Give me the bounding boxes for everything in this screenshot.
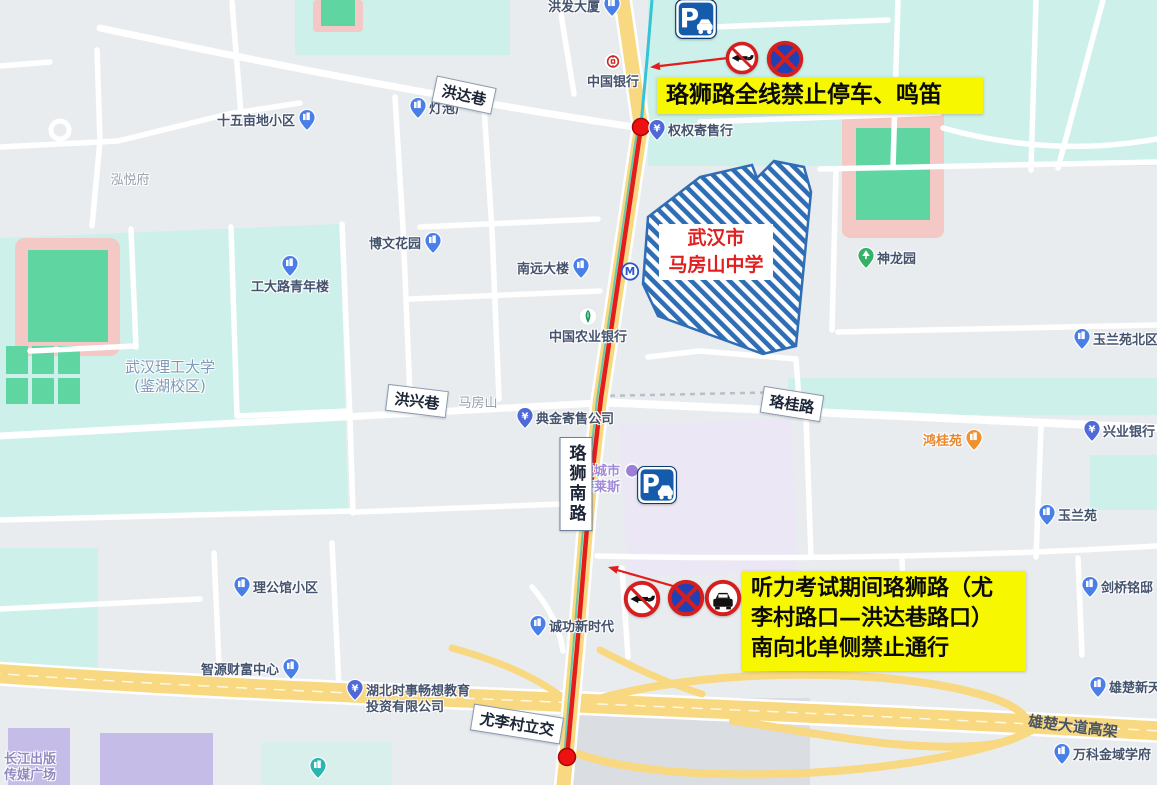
no-horn-sign-bottom-icon [623, 580, 662, 617]
parking-sign-top-icon: P [674, 0, 718, 40]
map-canvas[interactable]: 武汉市 马房山中学 洪发大厦中国银行 ¥权权寄售行 灯泡厂 十五亩地小区泓悦府 … [0, 0, 1157, 785]
no-vehicle-sign-bottom-icon [704, 579, 743, 616]
svg-text:P: P [680, 4, 699, 35]
no-horn-sign-top [725, 41, 760, 78]
svg-text:P: P [641, 469, 660, 499]
no-vehicle-sign-bottom [704, 579, 743, 620]
annotation-exam-closure: 听力考试期间珞狮路（尤 李村路口—洪达巷路口） 南向北单侧禁止通行 [742, 571, 1026, 671]
annotation-line: 珞狮路全线禁止停车、鸣笛 [666, 77, 974, 114]
annotation-line: 南向北单侧禁止通行 [751, 634, 1017, 664]
no-stopping-sign-top-icon [766, 40, 805, 77]
annotation-line: 李村路口—洪达巷路口） [751, 604, 1017, 634]
parking-sign-top: P [674, 0, 718, 44]
parking-sign-mall: P [636, 465, 678, 509]
parking-sign-mall-icon: P [636, 465, 678, 505]
annotation-line: 听力考试期间珞狮路（尤 [751, 574, 1017, 604]
no-horn-sign-top-icon [725, 41, 760, 74]
no-stopping-sign-top [766, 40, 805, 81]
annotation-no-parking-horn: 珞狮路全线禁止停车、鸣笛 [657, 77, 983, 114]
no-horn-sign-bottom [623, 580, 662, 621]
no-stopping-sign-bottom-icon [667, 579, 706, 616]
no-stopping-sign-bottom [667, 579, 706, 620]
